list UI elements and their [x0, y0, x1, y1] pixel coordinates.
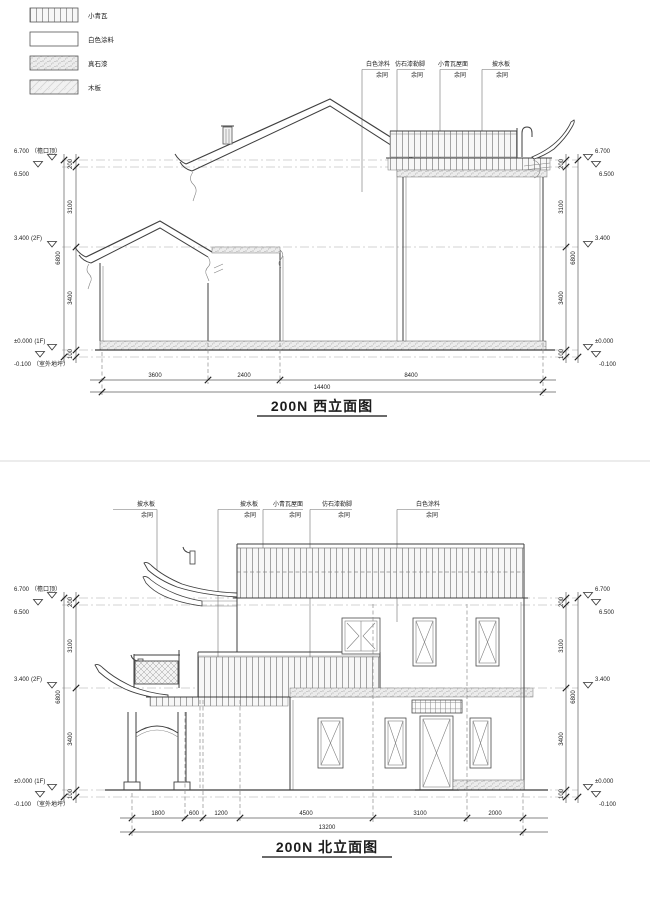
callout-sub: 余同: [426, 511, 438, 519]
hdim-label: 2400: [237, 373, 251, 379]
west-title: 200N 西立面图: [257, 398, 387, 416]
vdim-label: 100: [68, 788, 74, 799]
legend-item-stone-paint: 真石漆: [30, 56, 108, 70]
callout-sub: 余同: [411, 71, 423, 79]
north-2f-window: [476, 618, 499, 666]
legend-label: 真石漆: [88, 59, 108, 68]
callout-sub: 余同: [244, 511, 256, 519]
legend-label: 小青瓦: [88, 11, 108, 20]
vdim-total: 6800: [56, 251, 62, 265]
north-elevation: 披水板 余同 披水板 余同 小青瓦屋面 余同 仿石漆勒脚 余同 白色涂料 余同: [14, 500, 617, 857]
vdim-label: 200: [559, 158, 565, 169]
hdim-label: 600: [189, 811, 200, 817]
vdim-label: 3100: [68, 200, 74, 214]
west-building: [75, 99, 574, 350]
hdim-label: 3100: [413, 811, 427, 817]
vdim-label: 200: [68, 158, 74, 169]
north-2f-window-double: [342, 618, 380, 654]
callout-sub: 余同: [141, 511, 153, 519]
white-paint-swatch: [30, 32, 78, 46]
north-lattice-railing: [134, 650, 180, 688]
west-levels-right: 6.700 6.500 3.400 ±0.000 -0.100: [584, 149, 617, 368]
floor-stipple-band: [290, 688, 533, 697]
vdim-label: 200: [559, 596, 565, 607]
callout-sub: 余同: [376, 71, 388, 79]
callout-label: 仿石漆勒脚: [322, 500, 352, 508]
north-1f-window: [318, 718, 343, 768]
level-text: ±0.000(1F): [14, 779, 45, 785]
west-walls-left: [100, 247, 283, 341]
callout-label: 仿石漆勒脚: [395, 60, 425, 68]
level-text: ±0.000(1F): [14, 339, 45, 345]
west-level-axis-lines: [62, 160, 578, 357]
stone-paint-swatch: [30, 56, 78, 70]
level-text: 6.700: [595, 587, 611, 593]
level-text: 3.400: [595, 236, 611, 242]
vdim-label: 3400: [559, 291, 565, 305]
legend-item-wood: 木板: [30, 80, 102, 94]
hdim-label: 3600: [148, 373, 162, 379]
legend-label: 木板: [88, 83, 102, 92]
roof-vent-pipe: [221, 126, 234, 144]
callout-sub: 余同: [496, 71, 508, 79]
callout-label: 白色涂料: [366, 60, 390, 68]
porch-canopy-strip: [150, 697, 288, 706]
west-porch-roof: [75, 221, 223, 289]
legend-item-white-paint: 白色涂料: [30, 32, 115, 46]
vdim-label: 100: [559, 348, 565, 359]
west-vdims-left: 200 3100 3400 100 6800: [56, 154, 79, 363]
elevation-title: 200N 西立面图: [271, 398, 373, 414]
plinth-band: [100, 341, 546, 350]
hdim-label: 4500: [299, 811, 313, 817]
callout-label: 披水板: [240, 500, 258, 508]
vdim-label: 200: [68, 596, 74, 607]
vdim-label: 3100: [559, 200, 565, 214]
callout-label: 披水板: [137, 500, 155, 508]
legend-label: 白色涂料: [88, 35, 115, 44]
hdim-total: 14400: [314, 385, 331, 391]
material-legend: 小青瓦 白色涂料 真石漆 木板: [30, 8, 115, 94]
level-text: -0.100（室外地坪）: [14, 800, 69, 808]
elevation-title: 200N 北立面图: [276, 839, 378, 855]
level-text: 6.500: [599, 610, 615, 616]
vdim-label: 100: [559, 788, 565, 799]
hdim-label: 2000: [488, 811, 502, 817]
north-levels-right: 6.700 6.500 3.400 ±0.000 -0.100: [584, 587, 617, 808]
level-text: ±0.000: [595, 339, 614, 345]
callout-label: 披水板: [492, 60, 510, 68]
level-text: 3.400(2F): [14, 677, 42, 683]
north-vdims-right: 200 3100 3400 100 6800: [559, 592, 581, 803]
tile-swatch: [30, 8, 78, 22]
callout-label: 小青瓦屋面: [438, 60, 468, 68]
callout-label: 小青瓦屋面: [273, 500, 303, 508]
north-1f-window: [470, 718, 491, 768]
vdim-total: 6800: [56, 690, 62, 704]
west-hdims: 3600 2400 8400 14400: [90, 373, 556, 395]
vdim-label: 3400: [559, 732, 565, 746]
level-text: 6.700: [595, 149, 611, 155]
callout-sub: 余同: [338, 511, 350, 519]
wood-swatch: [30, 80, 78, 94]
west-terrace-block: [386, 120, 574, 341]
level-text: -0.100（室外地坪）: [14, 360, 69, 368]
roof-slab-band: [397, 170, 547, 177]
vdim-label: 3100: [559, 639, 565, 653]
plinth-band: [453, 780, 524, 790]
north-hdims: 1800 600 1200 4500 3100 2000 13200: [120, 811, 548, 835]
hdim-label: 1200: [214, 811, 228, 817]
north-2f-window: [413, 618, 436, 666]
level-text: -0.100: [599, 802, 617, 808]
north-title: 200N 北立面图: [262, 839, 392, 857]
door-transom-lattice: [412, 700, 462, 713]
west-elevation: 白色涂料 余同 仿石漆勒脚 余同 小青瓦屋面 余同 披水板 余同: [14, 60, 617, 416]
level-text: 3.400(2F): [14, 236, 42, 242]
vdim-label: 3400: [68, 291, 74, 305]
level-text: ±0.000: [595, 779, 614, 785]
vdim-total: 6800: [571, 251, 577, 265]
west-vdims-right: 200 3100 3400 100 6800: [559, 154, 581, 363]
drawing-canvas: 小青瓦 白色涂料 真石漆 木板 白色涂料 余同 仿石漆勒脚 余同 小青瓦屋面 余…: [0, 0, 650, 919]
hdim-label: 8400: [404, 373, 418, 379]
vdim-label: 3400: [68, 732, 74, 746]
callout-sub: 余同: [454, 71, 466, 79]
vdim-total: 6800: [571, 690, 577, 704]
callout-label: 白色涂料: [416, 500, 440, 508]
hdim-label: 1800: [151, 811, 165, 817]
north-1f-window: [385, 718, 406, 768]
terrace-railing: [390, 131, 517, 157]
tile-fascia-band: [388, 158, 550, 170]
north-entrance-door: [412, 700, 462, 790]
level-text: 6.700（檐口顶）: [14, 147, 61, 155]
north-vdims-left: 200 3100 3400 100 6800: [56, 592, 79, 803]
north-building: [95, 544, 548, 790]
level-text: 6.700（檐口顶）: [14, 585, 61, 593]
west-main-roof: [175, 99, 416, 201]
vdim-label: 3100: [68, 639, 74, 653]
callout-sub: 余同: [289, 511, 301, 519]
mid-slab-band: [212, 247, 280, 253]
west-callouts: 白色涂料 余同 仿石漆勒脚 余同 小青瓦屋面 余同 披水板 余同: [362, 60, 510, 341]
level-text: 6.500: [14, 172, 30, 178]
north-porch: [124, 700, 200, 790]
hdim-total: 13200: [319, 825, 336, 831]
level-text: 6.500: [14, 610, 30, 616]
level-text: 3.400: [595, 677, 611, 683]
level-text: -0.100: [599, 362, 617, 368]
vdim-label: 100: [68, 348, 74, 359]
drawing-sheet: 小青瓦 白色涂料 真石漆 木板 白色涂料 余同 仿石漆勒脚 余同 小青瓦屋面 余…: [0, 0, 650, 919]
legend-item-tile: 小青瓦: [30, 8, 108, 22]
level-text: 6.500: [599, 172, 615, 178]
north-terrace-band: [233, 544, 528, 598]
